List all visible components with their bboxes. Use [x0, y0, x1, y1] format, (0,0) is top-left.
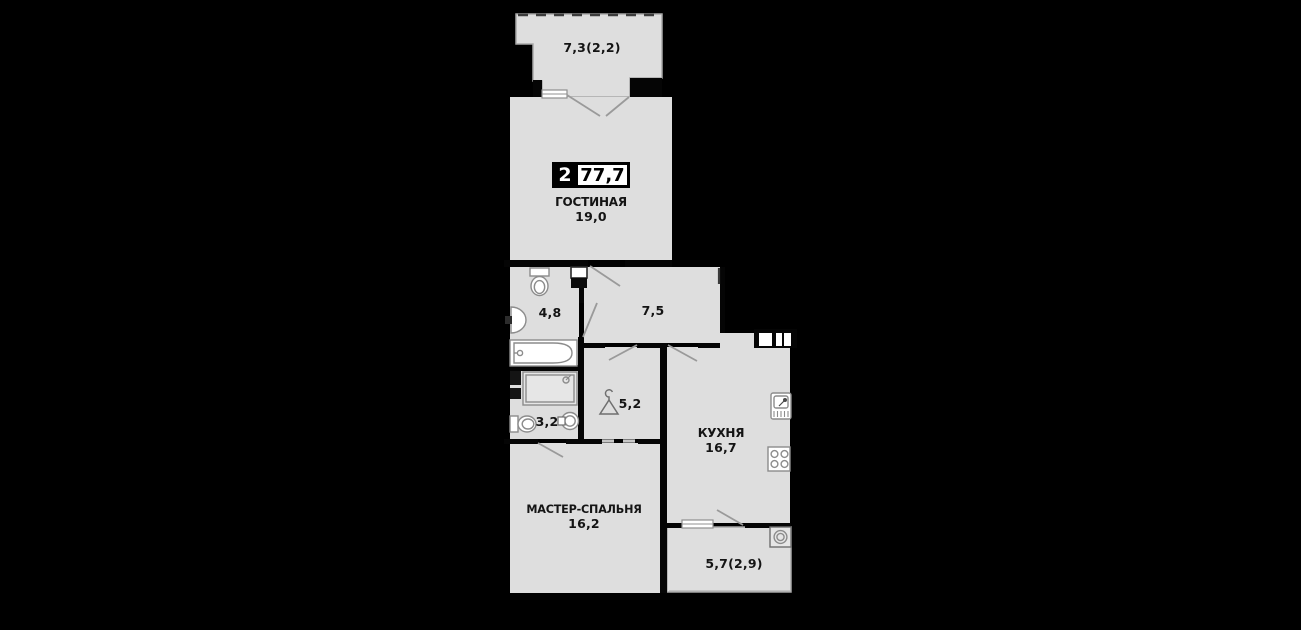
wall — [638, 439, 660, 444]
badge-total-area: 77,7 — [580, 165, 624, 186]
shaft-solid — [571, 278, 587, 288]
label-living-name: ГОСТИНАЯ — [555, 195, 627, 209]
washing-machine-icon — [770, 527, 791, 547]
wall — [566, 439, 578, 444]
label-balcony-bottom-area: 5,7(2,9) — [705, 556, 762, 571]
kitchen-window-sill — [682, 520, 713, 528]
toilet-icon — [530, 268, 549, 296]
shaft-cell — [571, 267, 587, 278]
label-shower-area: 3,2 — [536, 414, 559, 429]
area-badge: 2 77,7 — [552, 162, 630, 188]
kitchen-sink-icon — [771, 393, 791, 419]
badge-rooms-count: 2 — [558, 164, 571, 186]
room-wardrobe-floor — [584, 347, 660, 439]
label-wardrobe-area: 5,2 — [619, 396, 642, 411]
vent-shaft-icon — [754, 329, 797, 348]
wall — [625, 260, 672, 267]
label-kitchen-name: КУХНЯ — [698, 426, 745, 440]
stove-icon — [768, 447, 790, 471]
vent-cell — [759, 333, 772, 346]
wall — [630, 78, 662, 97]
wall — [698, 343, 720, 348]
vent-cell — [784, 333, 791, 346]
wall — [578, 337, 584, 443]
label-bedroom-name: МАСТЕР-СПАЛЬНЯ — [526, 503, 641, 516]
shower-tray-icon — [523, 372, 577, 405]
room-kitchen-entry-strip — [720, 333, 754, 348]
wall — [504, 260, 588, 267]
wall — [583, 343, 605, 348]
wall — [578, 439, 602, 444]
label-hallway-area: 7,5 — [642, 303, 665, 318]
vent-cell — [776, 333, 782, 346]
label-balcony-top-area: 7,3(2,2) — [563, 40, 620, 55]
wall — [660, 343, 667, 593]
wall — [533, 80, 542, 97]
water-heater-icon — [510, 371, 521, 399]
floor-plan-canvas: 2 77,7 7,3(2,2) ГОСТИНАЯ 19,0 4,8 7,5 3,… — [0, 0, 1301, 630]
tap — [505, 316, 512, 324]
label-kitchen-area: 16,7 — [705, 440, 737, 455]
label-bedroom-area: 16,2 — [568, 516, 600, 531]
wall — [720, 267, 725, 333]
wall — [504, 439, 538, 444]
bathroom-shaft-icon — [571, 267, 587, 288]
label-bathroom-area: 4,8 — [539, 305, 562, 320]
bathtub-icon — [510, 340, 577, 366]
wall — [665, 523, 682, 528]
balcony-window-sill — [542, 90, 567, 98]
label-living-area: 19,0 — [575, 209, 607, 224]
toilet-icon — [510, 416, 536, 432]
floor-plan: 2 77,7 7,3(2,2) ГОСТИНАЯ 19,0 4,8 7,5 3,… — [0, 0, 1301, 630]
